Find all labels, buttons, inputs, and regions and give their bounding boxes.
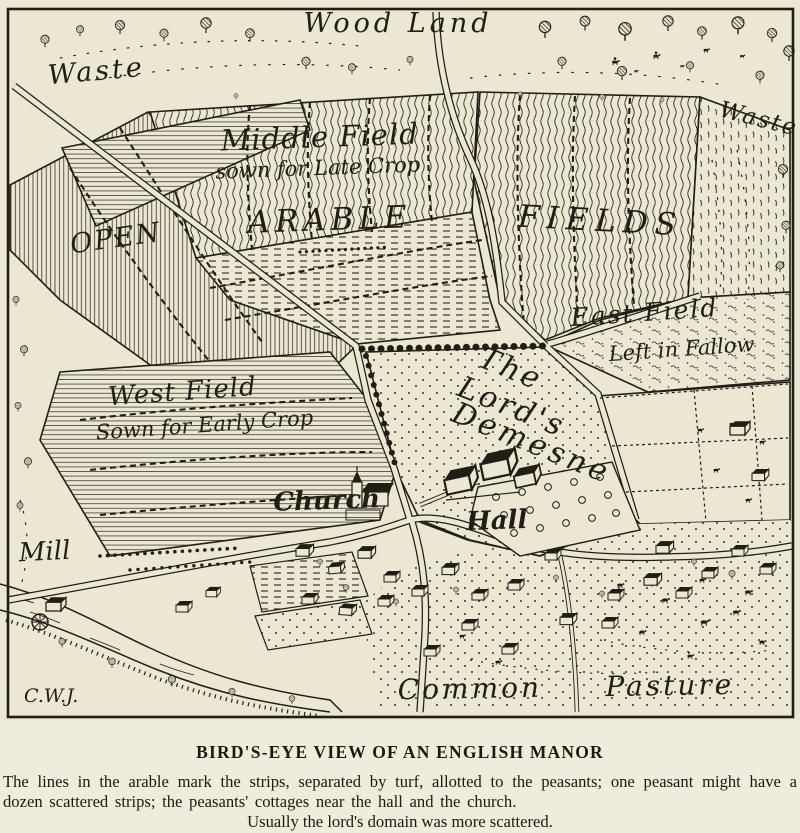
label-hall: Hall (465, 505, 528, 537)
label-arable: ARABLE (244, 199, 412, 241)
label-church: Church (273, 484, 381, 518)
label-middle-field: Middle Field (219, 117, 419, 158)
book-page: Wood Land Waste Waste Middle Field sown … (0, 0, 800, 833)
caption-footer: Usually the lord's domain was more scatt… (3, 812, 797, 832)
label-common: Common (397, 671, 542, 707)
caption-title: BIRD'S-EYE VIEW OF AN ENGLISH MANOR (0, 720, 800, 763)
label-wood-land: Wood Land (304, 8, 493, 39)
caption-body: The lines in the arable mark the strips,… (3, 772, 797, 812)
label-mill: Mill (17, 536, 71, 569)
label-pasture: Pasture (604, 668, 734, 703)
artist-signature: C.W.J. (24, 685, 78, 707)
caption-block: BIRD'S-EYE VIEW OF AN ENGLISH MANOR The … (0, 720, 800, 833)
manor-map-illustration: Wood Land Waste Waste Middle Field sown … (0, 0, 800, 720)
